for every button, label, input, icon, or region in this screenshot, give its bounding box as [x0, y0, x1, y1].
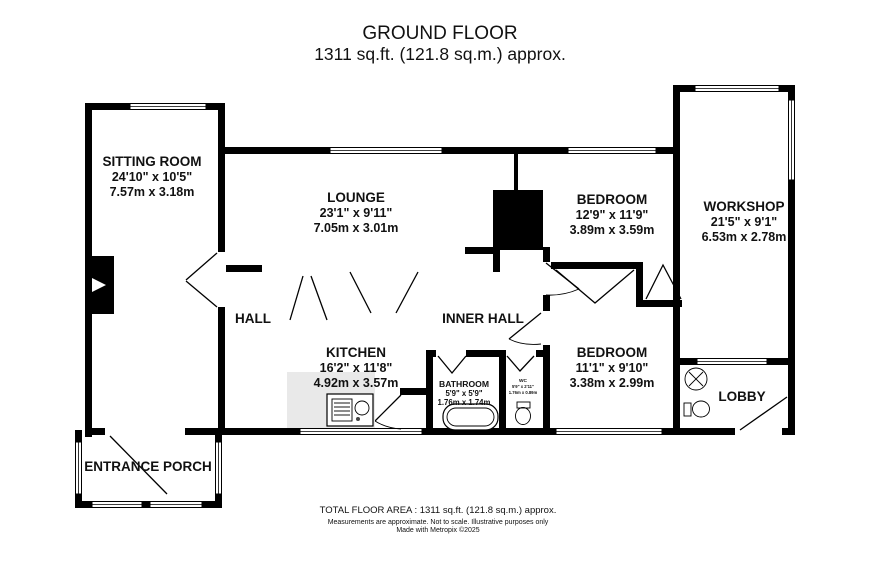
lounge-metric: 7.05m x 3.01m: [314, 221, 399, 235]
wardrobe-bifold-bottom: [556, 270, 634, 303]
bathtub-fixture: [443, 404, 498, 430]
bathroom-name: BATHROOM: [439, 379, 489, 389]
lounge-imperial: 23'1" x 9'11": [320, 206, 393, 220]
label-kitchen: KITCHEN 16'2" x 11'8" 4.92m x 3.57m: [314, 345, 399, 390]
door-hall-double: [290, 276, 327, 320]
lounge-name: LOUNGE: [327, 190, 385, 205]
workshop-metric: 6.53m x 2.78m: [702, 230, 787, 244]
lobby-basin-fixture: [685, 368, 707, 390]
sitting-room-imperial: 24'10" x 10'5": [112, 170, 192, 184]
window-lobby-divider: [697, 359, 767, 365]
bedroom-top-name: BEDROOM: [577, 192, 648, 207]
window-lounge-top: [330, 148, 442, 154]
credit: Made with Metropix ©2025: [396, 526, 479, 534]
kitchen-sink-fixture: [327, 394, 373, 426]
window-workshop-top: [695, 86, 779, 92]
total-floor-area: TOTAL FLOOR AREA : 1311 sq.ft. (121.8 sq…: [320, 505, 557, 516]
disclaimer: Measurements are approximate. Not to sca…: [328, 519, 549, 526]
footer: TOTAL FLOOR AREA : 1311 sq.ft. (121.8 sq…: [320, 505, 557, 534]
bedroom-bottom-imperial: 11'1" x 9'10": [576, 361, 649, 375]
window-porch-right: [216, 442, 222, 494]
bathroom-metric: 1.76m x 1.74m: [438, 398, 491, 407]
windows: [76, 86, 795, 508]
door-wc-bifold: [507, 356, 534, 371]
bathroom-imperial: 5'9" x 5'9": [445, 389, 482, 398]
door-openings: [105, 252, 782, 436]
plan-title: GROUND FLOOR: [362, 23, 517, 44]
window-kitchen-bottom: [300, 429, 422, 435]
lobby-toilet-fixture: [684, 401, 710, 417]
bedroom-bottom-metric: 3.38m x 2.99m: [570, 376, 655, 390]
hall-name: HALL: [235, 311, 271, 326]
doors: [110, 253, 787, 494]
door-lounge-double: [350, 272, 418, 313]
label-bedroom-top: BEDROOM 12'9" x 11'9" 3.89m x 3.59m: [570, 192, 655, 237]
window-porch-bottom-left: [92, 502, 142, 508]
bedroom-top-imperial: 12'9" x 11'9": [576, 208, 649, 222]
plan-subtitle: 1311 sq.ft. (121.8 sq.m.) approx.: [314, 44, 566, 64]
bedroom-bottom-name: BEDROOM: [577, 345, 648, 360]
wc-metric: 1.76m x 0.89m: [509, 390, 538, 395]
wc-toilet-fixture: [516, 402, 531, 425]
label-bathroom: BATHROOM 5'9" x 5'9" 1.76m x 1.74m: [438, 379, 491, 407]
kitchen-imperial: 16'2" x 11'8": [320, 361, 393, 375]
workshop-name: WORKSHOP: [704, 199, 785, 214]
room-labels: SITTING ROOM 24'10" x 10'5" 7.57m x 3.18…: [84, 154, 786, 474]
fireplace: [92, 256, 114, 314]
entrance-porch-name: ENTRANCE PORCH: [84, 459, 212, 474]
window-workshop-right: [789, 100, 795, 180]
label-lounge: LOUNGE 23'1" x 9'11" 7.05m x 3.01m: [314, 190, 399, 235]
lobby-name: LOBBY: [718, 389, 765, 404]
door-bathroom-bifold: [438, 356, 466, 373]
label-sitting-room: SITTING ROOM 24'10" x 10'5" 7.57m x 3.18…: [103, 154, 202, 199]
door-sitting-french: [186, 253, 217, 307]
window-bedroom-top: [568, 148, 656, 154]
fixtures: [92, 256, 710, 430]
door-kitchen: [375, 395, 401, 429]
label-wc: WC 5'9" x 2'11" 1.76m x 0.89m: [509, 378, 538, 395]
label-workshop: WORKSHOP 21'5" x 9'1" 6.53m x 2.78m: [702, 199, 787, 244]
label-bedroom-bottom: BEDROOM 11'1" x 9'10" 3.38m x 2.99m: [570, 345, 655, 390]
window-porch-bottom-right: [150, 502, 202, 508]
bedroom-top-metric: 3.89m x 3.59m: [570, 223, 655, 237]
kitchen-metric: 4.92m x 3.57m: [314, 376, 399, 390]
window-sitting-top: [130, 104, 206, 110]
window-porch-left: [76, 442, 82, 494]
kitchen-name: KITCHEN: [326, 345, 386, 360]
workshop-imperial: 21'5" x 9'1": [711, 215, 778, 229]
sitting-room-name: SITTING ROOM: [103, 154, 202, 169]
wc-imperial: 5'9" x 2'11": [512, 384, 534, 389]
floor-plan-page: GROUND FLOOR 1311 sq.ft. (121.8 sq.m.) a…: [0, 0, 886, 586]
window-bedroom-bottom: [556, 429, 662, 435]
sitting-room-metric: 7.57m x 3.18m: [110, 185, 195, 199]
inner-hall-name: INNER HALL: [442, 311, 524, 326]
floor-plan-drawing: GROUND FLOOR 1311 sq.ft. (121.8 sq.m.) a…: [0, 0, 886, 586]
